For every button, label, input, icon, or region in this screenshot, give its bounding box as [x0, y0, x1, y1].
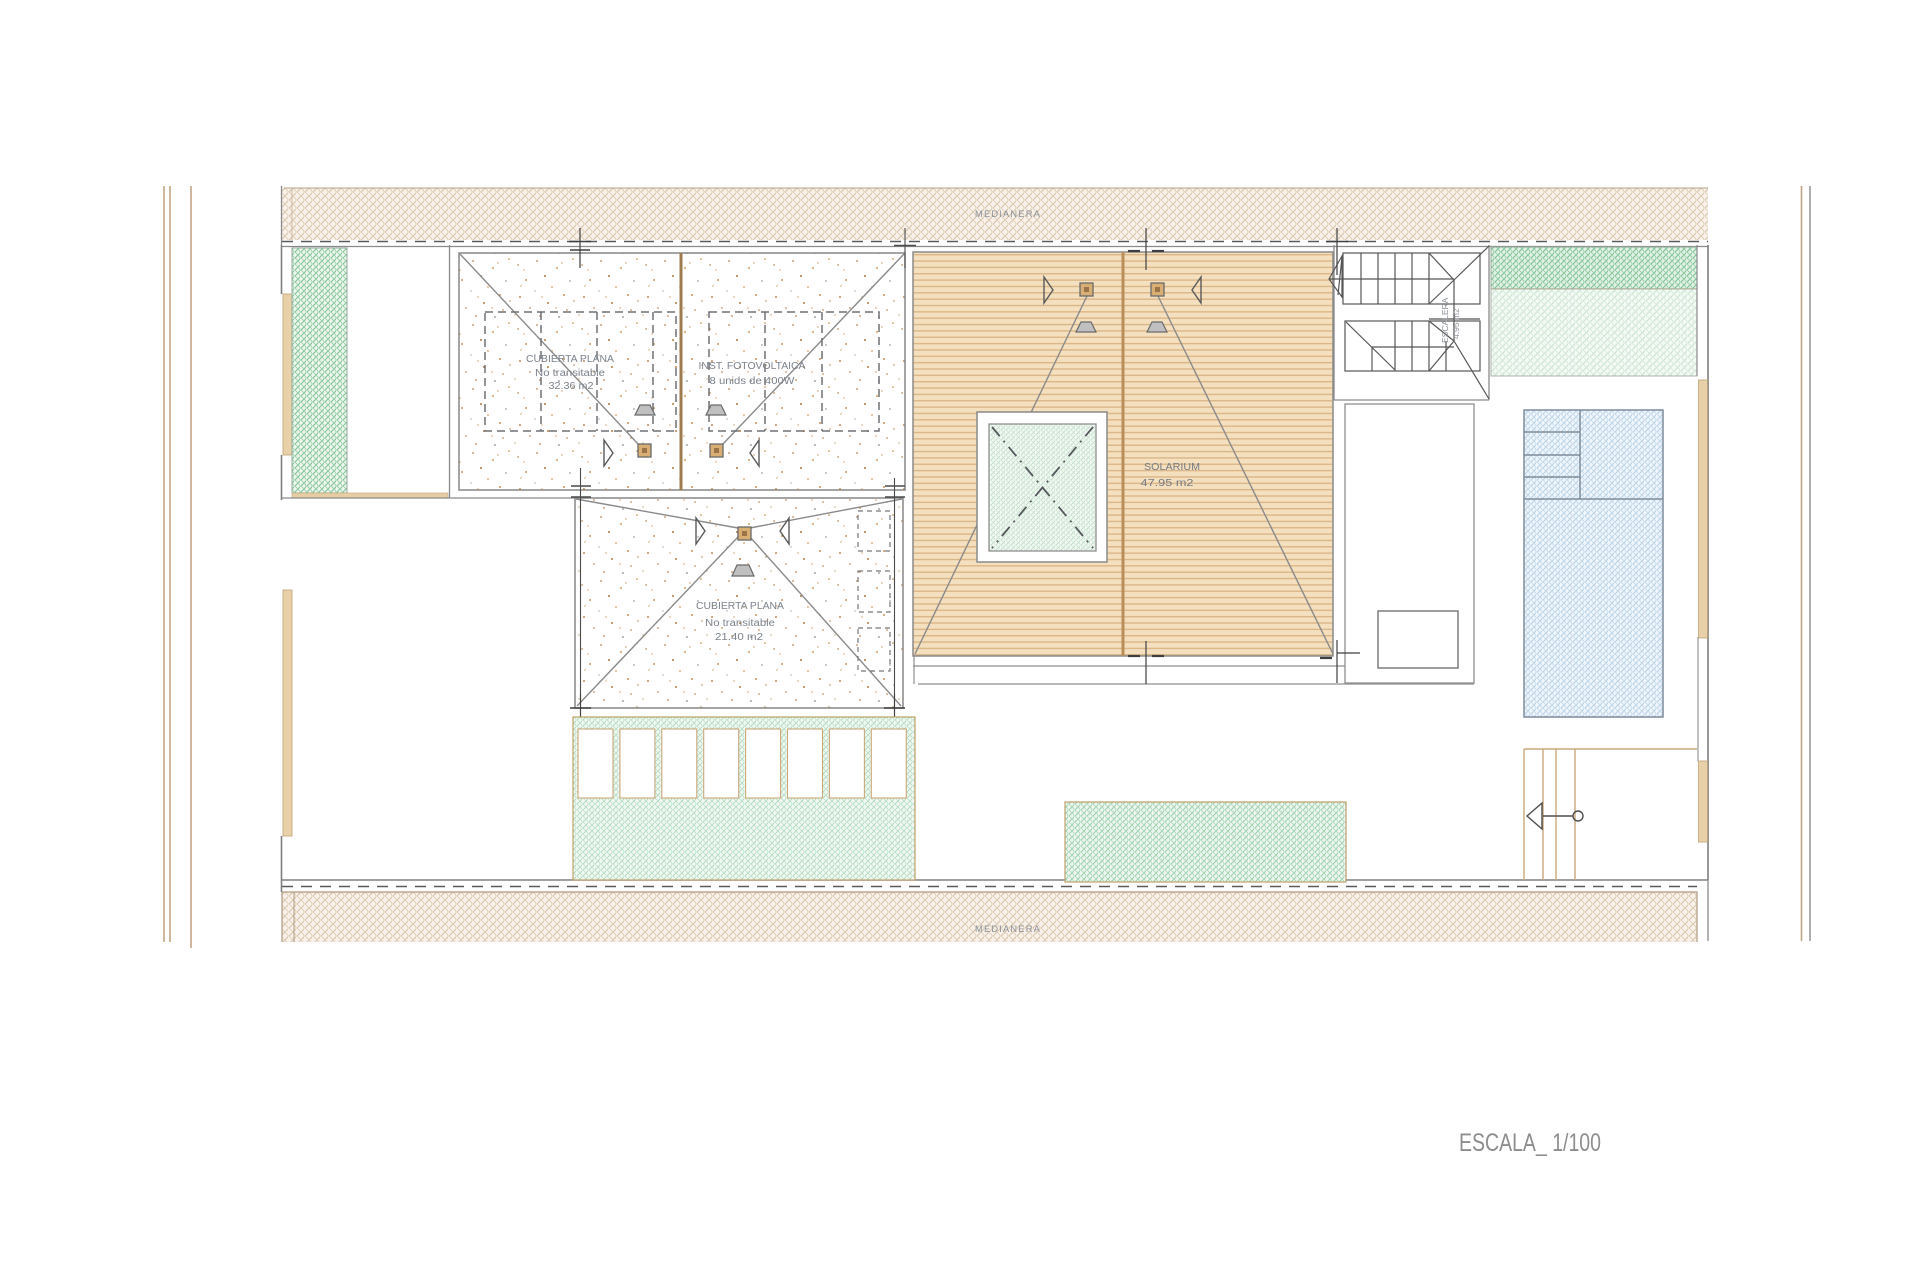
- svg-text:21.40 m2: 21.40 m2: [715, 632, 763, 643]
- svg-text:MEDIANERA: MEDIANERA: [975, 209, 1041, 220]
- svg-text:SOLARIUM: SOLARIUM: [1144, 462, 1200, 473]
- svg-text:INST. FOTOVOLTAICA: INST. FOTOVOLTAICA: [699, 361, 806, 372]
- svg-text:MEDIANERA: MEDIANERA: [975, 924, 1041, 935]
- svg-text:CUBIERTA PLANA: CUBIERTA PLANA: [526, 354, 614, 365]
- svg-text:CUBIERTA PLANA: CUBIERTA PLANA: [696, 601, 784, 612]
- svg-text:8 unids de 400W: 8 unids de 400W: [710, 376, 796, 387]
- svg-text:ESCALA_ 1/100: ESCALA_ 1/100: [1459, 1129, 1601, 1157]
- svg-text:No transitable: No transitable: [705, 618, 775, 629]
- svg-text:No transitable: No transitable: [535, 368, 605, 379]
- svg-text:47.95 m2: 47.95 m2: [1141, 478, 1195, 489]
- svg-text:32.36 m2: 32.36 m2: [549, 381, 594, 392]
